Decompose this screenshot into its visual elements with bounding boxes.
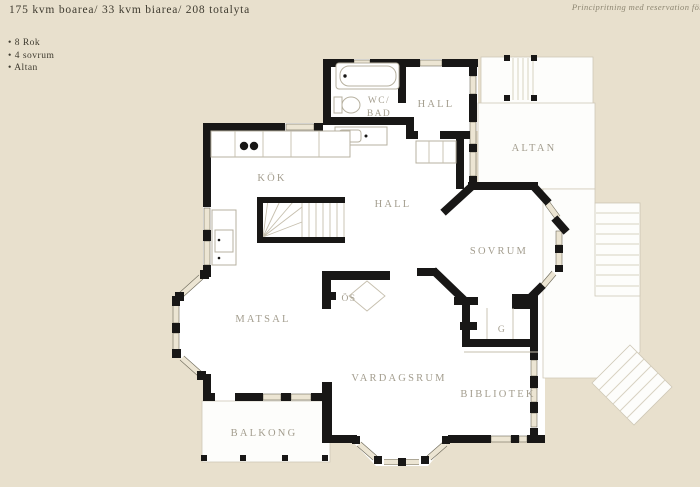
central-staircase (257, 197, 345, 243)
left-sink-unit (212, 210, 236, 265)
exterior-stair-east (595, 203, 640, 296)
room-label-hall: HALL (375, 199, 412, 210)
room-label-wc-bad: WC/ (368, 96, 390, 106)
floor-plan: WC/ BAD HALL ALTAN KÖK HALL SOVRUM MATSA… (0, 0, 700, 487)
room-label-hall-upper: HALL (418, 99, 455, 110)
room-label-vardagsrum: VARDAGSRUM (351, 373, 446, 384)
hall-closet (416, 141, 456, 163)
kitchen-counter (211, 131, 350, 157)
room-label-altan: ALTAN (512, 143, 557, 154)
room-label-balkong: BALKONG (231, 428, 298, 439)
room-label-kok: KÖK (257, 172, 286, 184)
bathtub (336, 63, 399, 89)
room-label-matsal: MATSAL (235, 314, 290, 325)
room-label-oppen-spis: ÖS (342, 292, 357, 304)
room-label-sovrum: SOVRUM (470, 246, 528, 257)
room-label-garderob: G (498, 325, 506, 335)
room-label-bibliotek: BIBLIOTEK (460, 389, 535, 400)
toilet (334, 97, 360, 113)
room-label-wc-bad: BAD (367, 109, 391, 119)
